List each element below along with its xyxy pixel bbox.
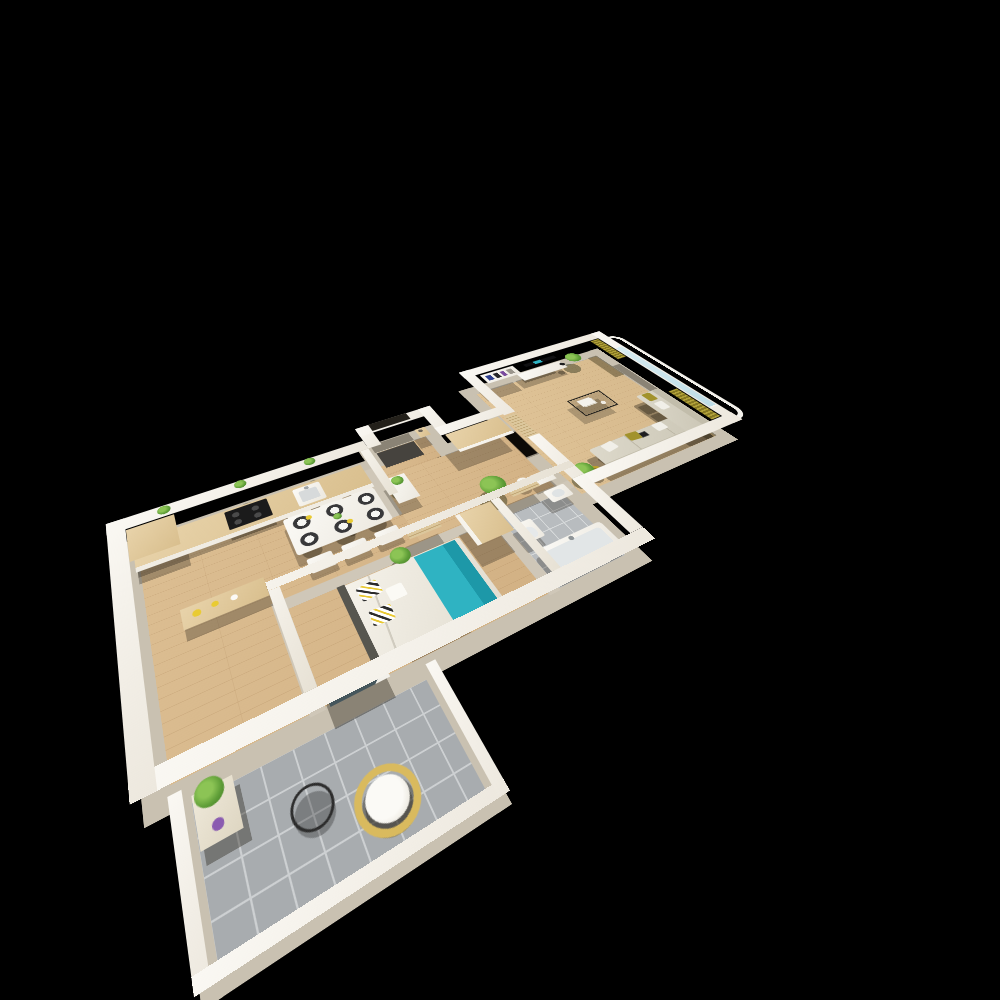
floorplan-3d: [80, 336, 957, 1000]
white-pillow: [385, 582, 408, 602]
render-canvas: [0, 0, 1000, 1000]
isometric-scene: [0, 0, 1000, 1000]
washbasin: [543, 483, 574, 502]
pattern-pillow: [355, 579, 383, 602]
magazines: [576, 397, 595, 407]
yellow-vase: [192, 608, 203, 618]
yellow-vase: [211, 600, 220, 608]
white-vase: [230, 593, 239, 601]
purple-ornament: [211, 815, 225, 834]
burner: [251, 505, 260, 512]
burner: [234, 518, 243, 525]
pattern-pillow: [368, 603, 396, 626]
burner: [253, 511, 262, 518]
vase: [418, 429, 424, 433]
basin-bowl: [550, 487, 568, 498]
sink-basin: [298, 486, 321, 502]
table-cup: [599, 400, 607, 404]
burner: [231, 511, 240, 518]
